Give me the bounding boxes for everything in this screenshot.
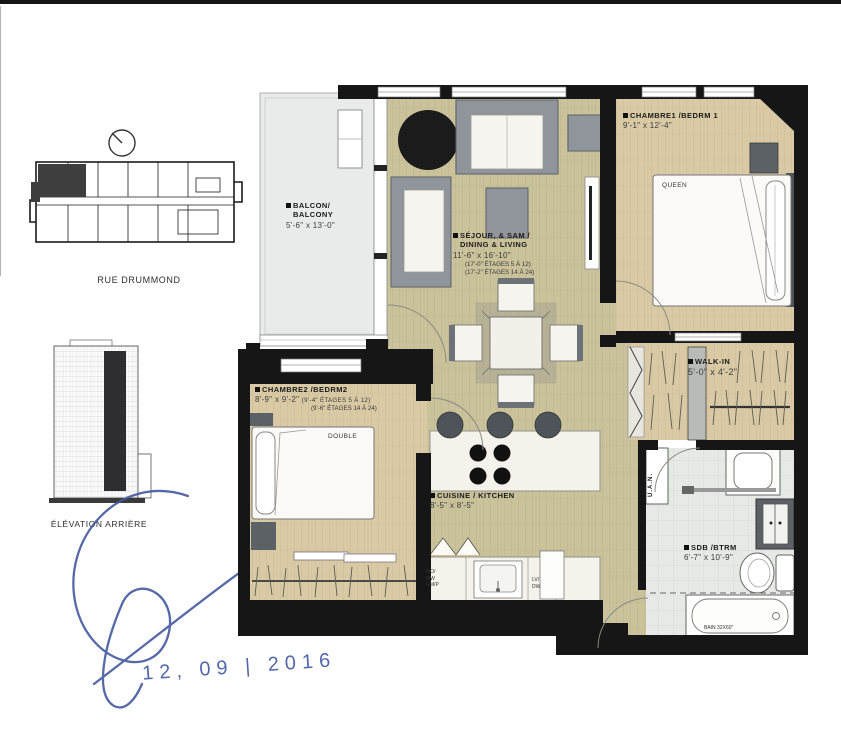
- queen-bed-label: QUEEN: [662, 182, 687, 189]
- bedroom2-label: CHAMBRE2 /BEDRM2 8'-9" x 9'-2" (9'-4" ÉT…: [255, 385, 377, 413]
- highlighted-unit-stack: [104, 351, 126, 491]
- bathtub: [686, 595, 794, 637]
- bathroom-label: SDB /BTRM 6'-7" x 10'-9": [684, 543, 737, 563]
- double-bed: [252, 427, 374, 519]
- dining-chair-north: [498, 281, 534, 311]
- floor-plan-sheet: RUE DRUMMOND ÉLÉVATION ARRIÈRE: [0, 0, 841, 730]
- microwave-pantry-label: MO/ MW GM/P: [426, 569, 439, 589]
- armchair: [391, 177, 451, 287]
- key-plan: RUE DRUMMOND: [28, 126, 250, 285]
- dining-chair-south: [498, 375, 534, 405]
- kitchen-island: [430, 431, 600, 491]
- fridge: [540, 551, 564, 599]
- dining-chair-west: [452, 325, 482, 361]
- dishwasher-label: LV/ DW: [532, 577, 540, 590]
- room-bullet: [688, 359, 693, 364]
- scan-top-border: [0, 0, 841, 4]
- living-bedroom1-wall: [600, 93, 616, 303]
- balcony-glass-wall: [374, 93, 387, 339]
- room-bullet: [453, 233, 458, 238]
- vanity: [756, 499, 794, 549]
- north-arrow-icon: [109, 130, 135, 156]
- room-bullet: [684, 545, 689, 550]
- dining-table: [490, 317, 542, 369]
- bar-stools: [437, 412, 561, 438]
- utility-label: U.A.N.: [648, 473, 654, 497]
- sofa: [456, 100, 558, 174]
- scan-left-border: [0, 6, 1, 276]
- toilet: [740, 553, 794, 593]
- bedroom2-nightstand-top: [250, 413, 273, 426]
- bedroom1-nightstand: [750, 143, 778, 173]
- room-bullet: [430, 493, 435, 498]
- kitchen-sink: [474, 561, 522, 598]
- balcony-label: BALCON/ BALCONY 5'-6" x 13'-0": [286, 201, 335, 231]
- street-label: RUE DRUMMOND: [28, 275, 250, 285]
- unit-floor-plan: BALCON/ BALCONY 5'-6" x 13'-0" SÉJOUR, &…: [238, 85, 813, 670]
- side-table: [568, 115, 602, 151]
- tv-console: [585, 177, 599, 269]
- bathtub-label: BAIN 32X60": [704, 625, 733, 632]
- living-label: SÉJOUR, & SAM / DINING & LIVING 11'-6" x…: [453, 231, 534, 276]
- dining-chair-east: [550, 325, 580, 361]
- shower-unit: [726, 447, 780, 495]
- room-bullet: [255, 387, 260, 392]
- bedroom2-nightstand-bottom: [251, 522, 276, 550]
- room-bullet: [623, 113, 628, 118]
- kitchen-label: CUISINE / KITCHEN 8'-5" x 8'-5": [430, 491, 515, 511]
- double-bed-label: DOUBLE: [328, 433, 357, 440]
- round-table: [398, 110, 458, 170]
- walkin-label: WALK-IN 5'-0" x 4'-2": [688, 357, 737, 379]
- bedroom1-label: CHAMBRE1 /BEDRM 1 9'-1" x 12'-4": [623, 111, 718, 131]
- key-plan-drawing: [28, 126, 250, 276]
- queen-bed: [653, 173, 796, 307]
- room-bullet: [286, 203, 291, 208]
- highlighted-unit: [31, 164, 86, 202]
